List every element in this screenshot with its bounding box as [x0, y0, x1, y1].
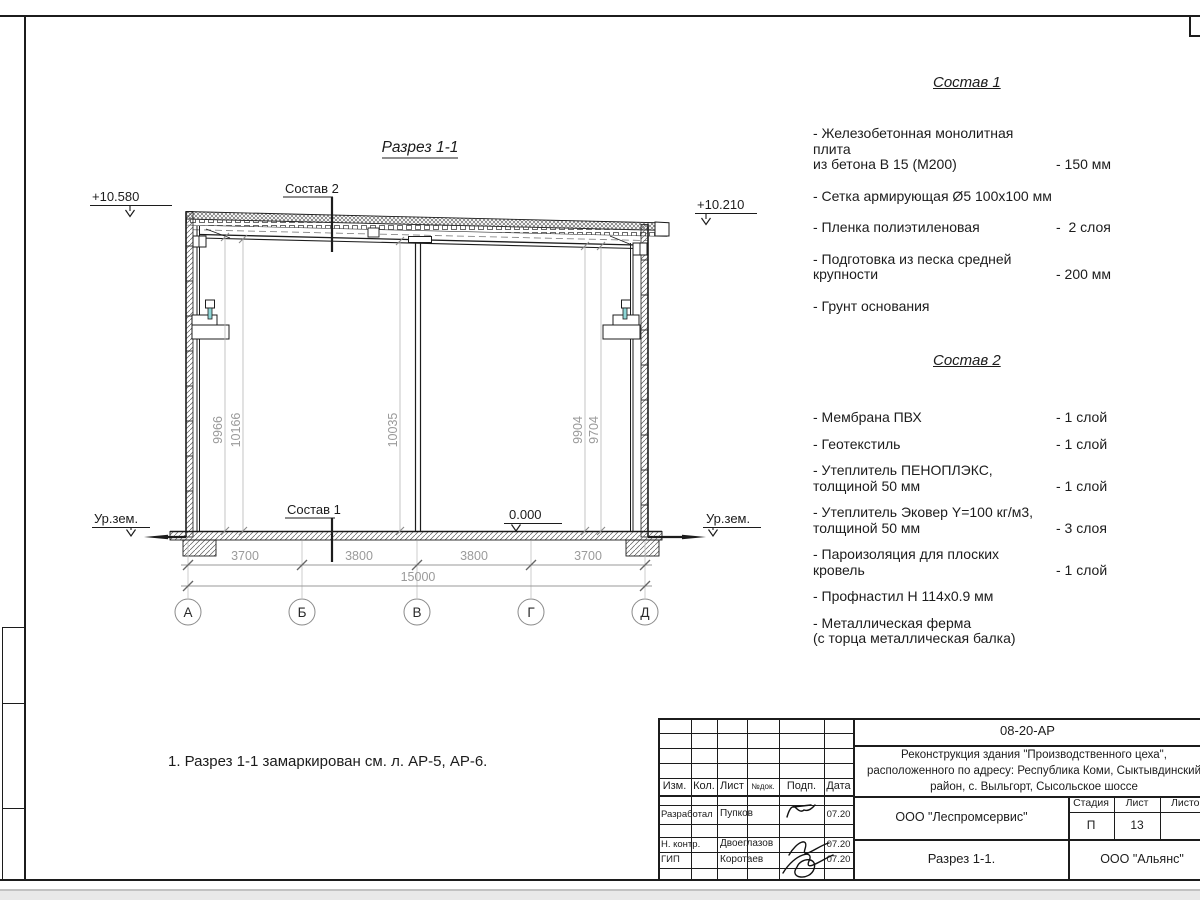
item-name: - Утеплитель Эковер Y=100 кг/м3, толщино… — [813, 505, 1053, 536]
axis-label-v: В — [412, 605, 421, 620]
ground-line-right — [682, 535, 706, 539]
height-dimension-texts: 9966 10166 10035 9904 9704 — [211, 413, 601, 448]
axis-bubbles: А Б В Г Д — [175, 599, 658, 625]
floor-slab — [144, 532, 706, 557]
item-value: - 3 слоя — [1056, 521, 1107, 537]
tb-col-podp: Подп. — [779, 778, 824, 795]
left-corner-detail — [193, 236, 206, 247]
axis-label-g: Г — [527, 605, 535, 620]
center-column — [409, 237, 432, 533]
dim-total: 15000 — [401, 570, 436, 584]
sostav1-ref-label: Состав 1 — [287, 502, 341, 517]
tb-line — [717, 718, 718, 880]
tb-doc-number: 08-20-АР — [855, 718, 1200, 745]
right-wall — [603, 225, 648, 538]
dim-height-2: 10166 — [229, 413, 243, 448]
list-item: - Пленка полиэтиленовая- 2 слоя — [813, 220, 1125, 236]
elev-floor: 0.000 — [509, 507, 542, 522]
axis-label-a: А — [183, 605, 192, 620]
roof-fascia — [655, 222, 669, 236]
item-name: - Утеплитель ПЕНОПЛЭКС, толщиной 50 мм — [813, 463, 1053, 494]
signatures — [779, 795, 853, 880]
dim-height-1: 9966 — [211, 416, 225, 444]
dim-height-5: 9704 — [587, 416, 601, 444]
sostav2-ref-label: Состав 2 — [285, 181, 339, 196]
sostav1-title: Состав 1 — [933, 74, 1001, 91]
tb-stage-value: П — [1068, 812, 1114, 839]
tb-name-gip: Коротаев — [720, 852, 778, 868]
item-value: - 1 слой — [1056, 437, 1107, 453]
list-item: - Профнастил Н 114x0.9 мм — [813, 589, 1125, 605]
sostav1-list: - Железобетонная монолитная плита из бет… — [813, 126, 1125, 330]
item-name: - Подготовка из песка средней крупности — [813, 252, 1053, 283]
list-item: - Утеплитель ПЕНОПЛЭКС, толщиной 50 мм- … — [813, 463, 1125, 494]
item-name: - Сетка армирующая Ø5 100x100 мм — [813, 189, 1053, 205]
signature-developer — [793, 805, 811, 807]
dim-height-4: 9904 — [571, 416, 585, 444]
height-dimensions — [221, 233, 605, 535]
tb-line — [658, 763, 853, 764]
item-name: - Металлическая ферма (с торца металличе… — [813, 616, 1053, 647]
left-crane-bracket — [192, 300, 229, 339]
tb-name-developer: Пупков — [720, 805, 778, 824]
tb-col-kol: Кол. — [691, 778, 717, 795]
tb-sheets-value — [1160, 812, 1200, 839]
tb-role-developer: Разработал — [661, 805, 717, 824]
item-value: - 1 слой — [1056, 410, 1107, 426]
bracket-accent — [623, 308, 627, 319]
dim-span-1: 3700 — [231, 549, 259, 563]
item-name: - Железобетонная монолитная плита из бет… — [813, 126, 1053, 173]
right-footing — [626, 540, 659, 556]
section-title: Разрез 1-1 — [382, 139, 459, 158]
list-item: - Утеплитель Эковер Y=100 кг/м3, толщино… — [813, 505, 1125, 536]
item-value: - 1 слой — [1056, 479, 1107, 495]
elev-top-right: +10.210 — [697, 197, 744, 212]
list-item: - Железобетонная монолитная плита из бет… — [813, 126, 1125, 173]
tb-line — [658, 748, 853, 749]
dim-height-3: 10035 — [386, 413, 400, 448]
truss-connector — [368, 228, 379, 237]
list-item: - Подготовка из песка средней крупности-… — [813, 252, 1125, 283]
drawing-note: 1. Разрез 1-1 замаркирован см. л. АР-5, … — [168, 753, 487, 770]
tb-sheet-label: Лист — [1114, 796, 1160, 812]
item-name: - Грунт основания — [813, 299, 1053, 315]
item-value: - 1 слой — [1056, 563, 1107, 579]
item-name: - Геотекстиль — [813, 437, 1053, 453]
item-name: - Профнастил Н 114x0.9 мм — [813, 589, 1053, 605]
list-item: - Пароизоляция для плоских кровель- 1 сл… — [813, 547, 1125, 578]
tb-line — [658, 718, 660, 880]
tb-sheets-label: Листов — [1160, 796, 1200, 812]
list-item: - Грунт основания — [813, 299, 1125, 315]
tb-org: ООО "Леспромсервис" — [855, 796, 1068, 839]
right-crane-bracket — [603, 300, 640, 339]
signature-gip — [783, 854, 833, 873]
dim-span-4: 3700 — [574, 549, 602, 563]
list-item: - Геотекстиль- 1 слой — [813, 437, 1125, 453]
dim-span-2: 3800 — [345, 549, 373, 563]
list-item: - Мембрана ПВХ- 1 слой — [813, 410, 1125, 426]
item-value: - 2 слоя — [1056, 220, 1111, 236]
sostav2-list: - Мембрана ПВХ- 1 слой - Геотекстиль- 1 … — [813, 410, 1125, 658]
dim-span-3: 3800 — [460, 549, 488, 563]
bracket-accent — [208, 308, 212, 319]
ground-label-right: Ур.зем. — [706, 511, 750, 526]
tb-col-izm: Изм. — [658, 778, 691, 795]
list-item: - Металлическая ферма (с торца металличе… — [813, 616, 1125, 647]
sheet: Разрез 1-1 — [0, 0, 1200, 891]
axis-label-d: Д — [640, 605, 649, 620]
tb-col-data: Дата — [824, 778, 853, 795]
ground-label-left: Ур.зем. — [94, 511, 138, 526]
tb-line — [658, 733, 853, 734]
tb-col-ndok: №док. — [747, 778, 779, 795]
section-title-text: Разрез 1-1 — [382, 139, 459, 156]
left-wall — [186, 212, 230, 538]
tb-project: Реконструкция здания "Производственного … — [853, 746, 1200, 796]
tb-col-list: Лист — [717, 778, 747, 795]
bottom-dimensions: 3700 3800 3800 3700 15000 — [181, 541, 652, 598]
ground-line-left — [144, 535, 168, 539]
tb-contractor: ООО "Альянс" — [1068, 839, 1200, 880]
signature-ncontrol — [789, 842, 829, 855]
tb-role-gip: ГИП — [661, 852, 717, 868]
tb-sheet-title: Разрез 1-1. — [855, 839, 1068, 880]
tb-role-ncontrol: Н. контр. — [661, 837, 717, 852]
item-name: - Пленка полиэтиленовая — [813, 220, 1053, 236]
drawing-sheet-screen: Разрез 1-1 — [0, 0, 1200, 900]
tb-name-ncontrol: Двоеглазов — [720, 837, 778, 852]
item-name: - Мембрана ПВХ — [813, 410, 1053, 426]
tb-sheet-value: 13 — [1114, 812, 1160, 839]
item-value: - 150 мм — [1056, 157, 1111, 173]
item-value: - 200 мм — [1056, 267, 1111, 283]
axis-label-b: Б — [298, 605, 307, 620]
elev-top-left: +10.580 — [92, 189, 139, 204]
list-item: - Сетка армирующая Ø5 100x100 мм — [813, 189, 1125, 205]
tb-stage-label: Стадия — [1068, 796, 1114, 812]
signature-gip — [795, 860, 815, 877]
sostav2-title: Состав 2 — [933, 352, 1001, 369]
item-name: - Пароизоляция для плоских кровель — [813, 547, 1053, 578]
